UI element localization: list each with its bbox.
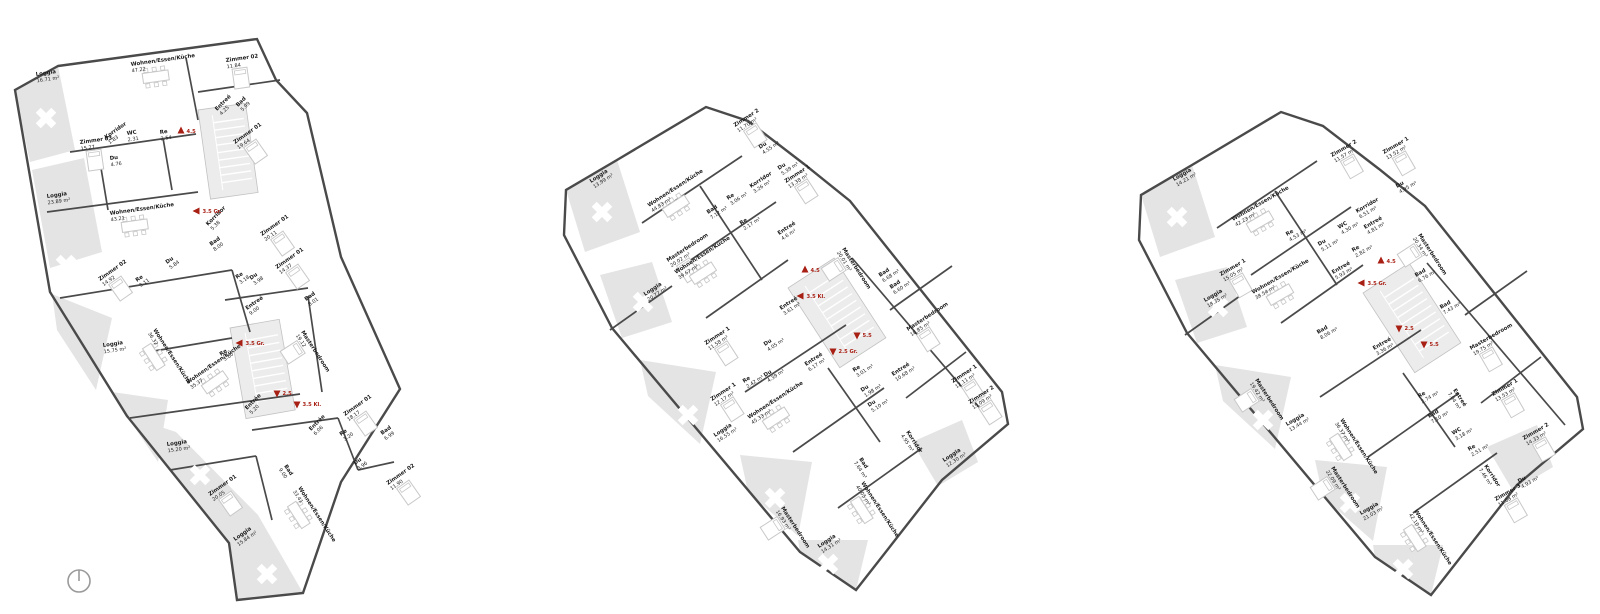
interior-wall xyxy=(706,260,788,318)
interior-wall xyxy=(163,138,172,190)
interior-wall xyxy=(1368,393,1459,457)
apartment-size-text: 3.5 Kl. xyxy=(303,402,322,408)
room-name: Zimmer 02 xyxy=(225,53,258,64)
floor-plan-left: Loggia16.71 m²Wohnen/Essen/Küche47.22Zim… xyxy=(15,39,420,600)
interior-wall xyxy=(186,58,198,120)
apartment-size-text: 4.5 xyxy=(187,129,197,135)
chair xyxy=(142,230,147,235)
room-label: Entreé6.17 m² xyxy=(803,351,827,373)
room-label: Loggia15.75 m² xyxy=(102,340,126,355)
apartment-marker-triangle-icon xyxy=(1358,280,1365,287)
floor-plans-canvas: Loggia16.71 m²Wohnen/Essen/Küche47.22Zim… xyxy=(0,0,1600,614)
interior-wall xyxy=(793,388,884,452)
room-label: Entreé7.04 m² xyxy=(1446,387,1468,411)
room-label: Du5.84 xyxy=(165,254,181,271)
room-label: Korridor7.46 m² xyxy=(1477,464,1501,492)
chair xyxy=(160,66,165,71)
room-label: Entreé10.68 m² xyxy=(890,359,916,383)
apartment-size-text: 4.5 xyxy=(811,268,821,274)
apartment-marker-triangle-icon xyxy=(1378,257,1385,264)
room-label: Bad8.00 xyxy=(209,236,226,253)
room-label: Bad8.06 m² xyxy=(1316,321,1339,342)
room-label: Entreé4.81 m² xyxy=(1363,214,1387,236)
apartment-size-text: 2.5 Gr. xyxy=(839,349,858,355)
chair xyxy=(146,84,151,89)
apartment-marker-triangle-icon xyxy=(193,208,200,215)
apartment-size-text: 5.5 xyxy=(863,333,873,339)
room-label: Loggia13.44 m² xyxy=(1285,411,1311,433)
apartment-size-text: 3.5 Gr. xyxy=(1368,281,1387,287)
apartment-type-marker: 4.5 xyxy=(1378,257,1397,266)
chair xyxy=(131,216,136,221)
interior-wall xyxy=(838,448,922,508)
floor-plan-middle: Loggia13.99 m²Zimmer 211.70 m²Du4.55 m²D… xyxy=(564,107,1008,590)
room-label: Bad7.43 m² xyxy=(1439,296,1462,317)
apartment-type-marker: 3.5 Gr. xyxy=(193,208,222,216)
apartment-size-text: 5.5 xyxy=(1430,342,1440,348)
interior-wall xyxy=(642,156,742,223)
loggia-area xyxy=(1215,365,1291,449)
room-label: WC4.30 m² xyxy=(1337,216,1360,237)
architectural-drawing-sheet: Loggia16.71 m²Wohnen/Essen/Küche47.22Zim… xyxy=(0,0,1600,614)
room-label: Re2.42 m² xyxy=(742,369,765,390)
room-label: Re2.74 m² xyxy=(1417,385,1440,406)
room-label: Du4.76 xyxy=(109,154,122,168)
apartment-size-text: 3.5 Gr. xyxy=(246,341,265,347)
apartment-marker-triangle-icon xyxy=(178,127,185,134)
north-arrow-icon xyxy=(68,570,90,592)
bed-icon xyxy=(86,149,104,171)
apartment-type-marker: 4.5 xyxy=(802,266,821,275)
room-label: Re2.82 m² xyxy=(1351,239,1374,260)
room-label: Bad7.12 m² xyxy=(706,200,729,221)
room-label: Bad8.01 xyxy=(304,291,321,308)
room-label: Entreé3.36 m² xyxy=(1372,335,1396,357)
chair xyxy=(139,215,144,220)
room-label: Re3.01 m² xyxy=(852,358,875,379)
room-label: Loggia16.55 m² xyxy=(713,421,739,444)
room-label: Korridor3.26 m² xyxy=(749,171,777,195)
room-label: Re3.20 xyxy=(339,426,355,443)
room-label: Re2.54 xyxy=(159,128,172,142)
interior-wall xyxy=(1320,330,1421,397)
interior-wall xyxy=(1281,265,1363,323)
bed-icon xyxy=(232,67,250,89)
room-label: Entrée6.06 xyxy=(307,413,331,437)
room-label: Du1.98 m² xyxy=(860,378,883,399)
chair xyxy=(154,82,159,87)
chair xyxy=(163,81,168,86)
room-label: Bad9.00 xyxy=(277,464,294,481)
apartment-size-text: 3.5 Kl. xyxy=(807,294,826,300)
apartment-size-text: 2.5 xyxy=(283,391,293,397)
room-area: 2.54 xyxy=(160,135,172,142)
interior-wall xyxy=(256,456,272,520)
room-label: Entreé9.00 xyxy=(244,294,268,317)
apartment-size-text: 4.5 xyxy=(1387,259,1397,265)
room-label: Du4.05 m² xyxy=(763,332,786,353)
room-label: Entreé4.6 m² xyxy=(776,220,800,242)
apartment-type-marker: 3.5 Kl. xyxy=(294,402,322,409)
room-label: Du3.98 xyxy=(249,270,265,287)
room-label: Bad7.64 m² xyxy=(852,457,873,480)
interior-wall xyxy=(1403,373,1455,447)
apartment-type-marker: 4.5 xyxy=(178,127,197,136)
chair xyxy=(133,231,138,236)
room-label: Re3.06 m² xyxy=(726,186,749,207)
room-label: WC2.31 xyxy=(126,129,139,143)
interior-wall xyxy=(1465,271,1527,315)
room-label: Re3.11 xyxy=(135,272,151,289)
apartment-marker-triangle-icon xyxy=(802,266,809,273)
room-label: Entreé5.93 m² xyxy=(1331,259,1355,281)
stairs-icon xyxy=(230,319,295,418)
floor-plan-right: Loggia14.21 m²Zimmer 211.57 m²Zimmer 113… xyxy=(1139,112,1583,595)
chair xyxy=(125,233,130,238)
room-label: Bad6.76 m² xyxy=(1414,264,1437,285)
interior-wall xyxy=(1413,453,1497,513)
room-label: WC3.18 m² xyxy=(1451,422,1474,443)
room-area: 4.76 xyxy=(110,161,122,168)
chair xyxy=(152,67,157,72)
apartment-size-text: 3.5 Gr. xyxy=(203,209,222,215)
interior-wall xyxy=(252,418,338,430)
room-label: Bad6.99 xyxy=(380,425,397,442)
room-label: Re2.51 m² xyxy=(1467,438,1490,459)
loggia-area xyxy=(640,360,716,444)
room-label: Re4.53 m² xyxy=(1285,223,1308,244)
apartment-type-marker: 3.5 Gr. xyxy=(1358,280,1387,288)
room-label: Du5.11 m² xyxy=(1317,233,1340,254)
apartment-size-text: 2.5 xyxy=(1405,326,1415,332)
loggia-area xyxy=(127,416,303,600)
